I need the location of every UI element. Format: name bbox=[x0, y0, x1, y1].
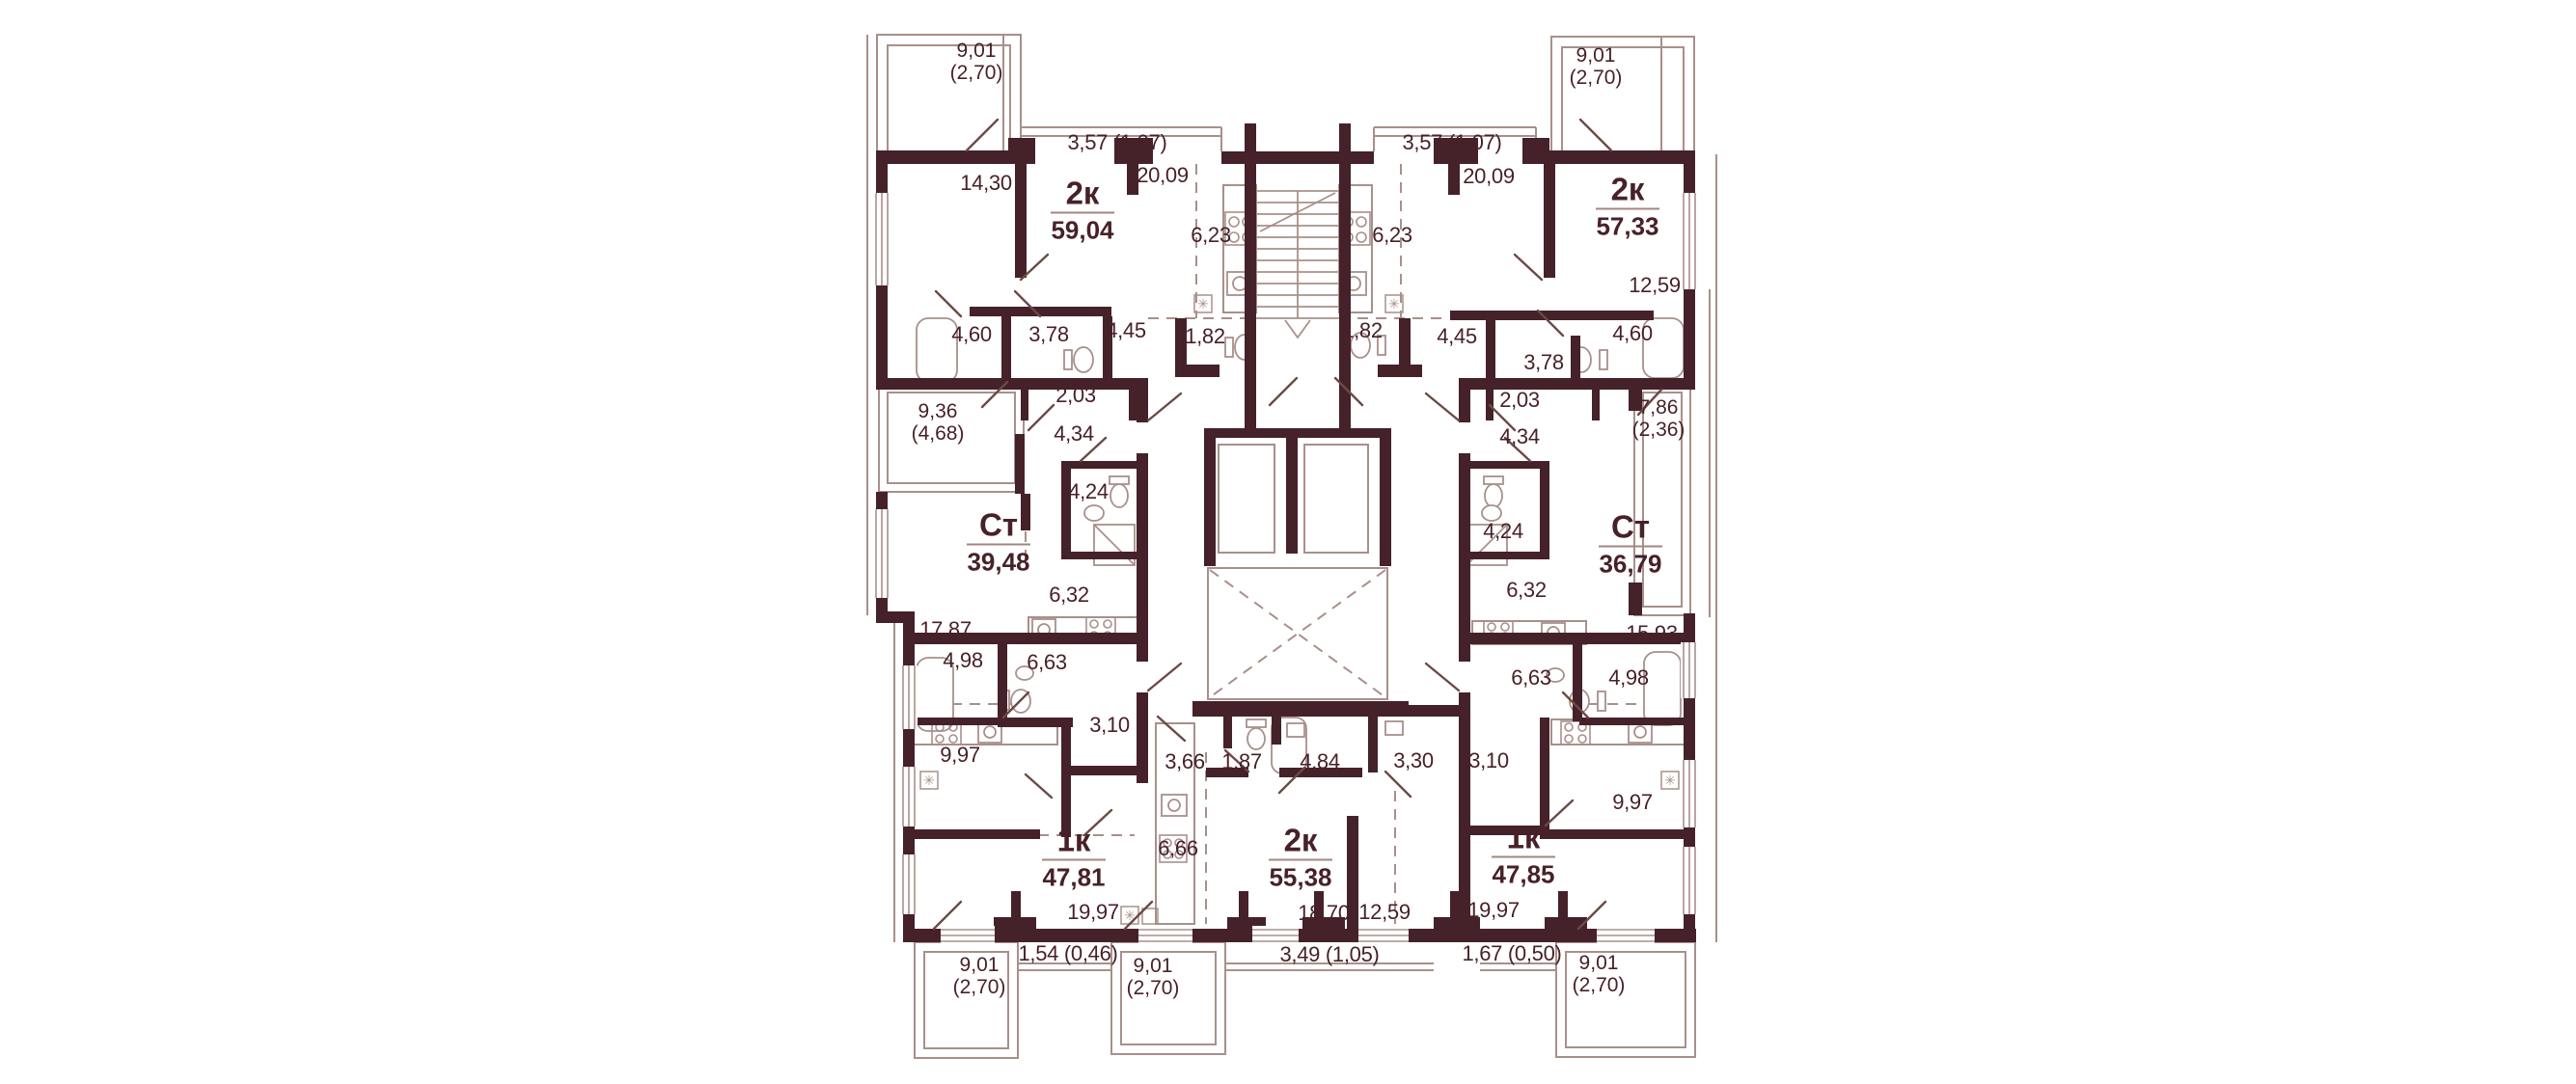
floor-plan-page: ✳ ✳ ✳ ✳ ✳ bbox=[0, 0, 2576, 1084]
floor-plan-drawing: ✳ ✳ ✳ ✳ ✳ bbox=[0, 0, 2576, 1084]
svg-text:✳: ✳ bbox=[1197, 296, 1209, 312]
svg-text:✳: ✳ bbox=[923, 772, 935, 788]
staircase bbox=[1256, 191, 1339, 338]
walls bbox=[876, 123, 1696, 942]
svg-text:✳: ✳ bbox=[1388, 296, 1400, 312]
svg-text:✳: ✳ bbox=[1664, 772, 1676, 788]
